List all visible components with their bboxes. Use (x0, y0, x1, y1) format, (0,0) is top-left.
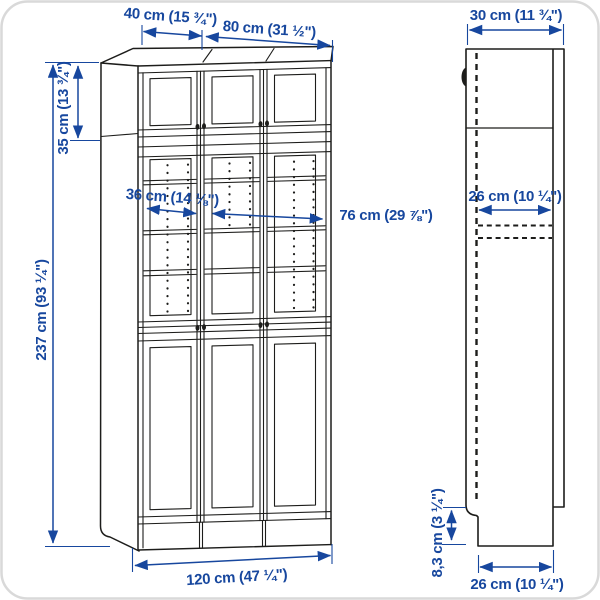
front-top-face-joints (203, 49, 274, 63)
dim-ticks-side-bottom (479, 550, 554, 573)
label-width-80: 80 cm (31 ½") (222, 18, 317, 41)
side-outline (466, 49, 564, 546)
label-width-76: 76 cm (29 ⅞") (339, 207, 433, 224)
image-corner-frame (2, 2, 599, 599)
dim-ticks-bottom (133, 544, 333, 572)
glass-door-frames (150, 155, 316, 316)
dim-arrow-40 (144, 32, 202, 37)
label-height-35: 35 cm (13 ¾") (55, 61, 72, 155)
panel-door-frames (150, 343, 316, 510)
dimension-labels: 40 cm (15 ¾") 80 cm (31 ½") 35 cm (13 ¾"… (33, 5, 564, 593)
label-height-8-3: 8,3 cm (3 ¼") (429, 488, 446, 577)
door-knobs (196, 120, 270, 331)
plinth-joints (200, 520, 266, 548)
label-depth-26: 26 cm (10 ¼") (468, 188, 562, 205)
front-top-face (101, 47, 333, 67)
diagram-canvas: 40 cm (15 ¾") 80 cm (31 ½") 35 cm (13 ¾"… (0, 0, 600, 600)
dim-arrow-120 (135, 556, 331, 566)
side-view-drawing (462, 49, 565, 546)
extension-door-frames (150, 74, 316, 126)
label-depth-30: 30 cm (11 ¾") (470, 7, 563, 24)
side-shelf-dashed (478, 226, 552, 239)
front-side-joint-line (101, 134, 138, 137)
product-dimension-diagram: 40 cm (15 ¾") 80 cm (31 ½") 35 cm (13 ¾"… (0, 0, 600, 600)
label-width-120: 120 cm (47 ¼") (186, 566, 288, 589)
label-width-40: 40 cm (15 ¾") (123, 5, 218, 28)
label-height-237: 237 cm (93 ¼") (33, 259, 50, 361)
dim-ticks-side-top (468, 24, 564, 45)
peg-hole-dots-middle (230, 163, 251, 226)
dimension-lines (45, 24, 564, 573)
label-depth-26-bottom: 26 cm (10 ¼") (470, 576, 564, 593)
front-face (138, 61, 331, 550)
side-knob (462, 68, 467, 87)
front-stiles-mullions (143, 68, 326, 548)
label-width-36: 36 cm (14 ⅛") (125, 186, 220, 209)
front-view-drawing (101, 47, 334, 552)
